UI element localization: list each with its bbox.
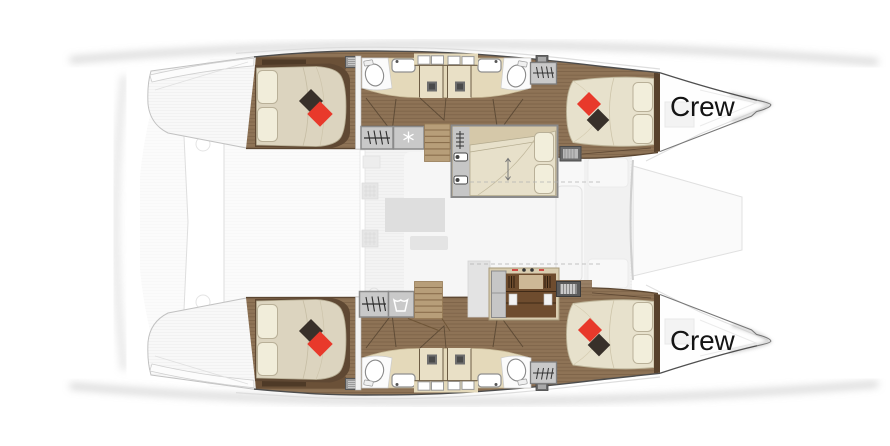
- svg-text:Crew: Crew: [670, 325, 736, 356]
- svg-text:Crew: Crew: [670, 91, 736, 122]
